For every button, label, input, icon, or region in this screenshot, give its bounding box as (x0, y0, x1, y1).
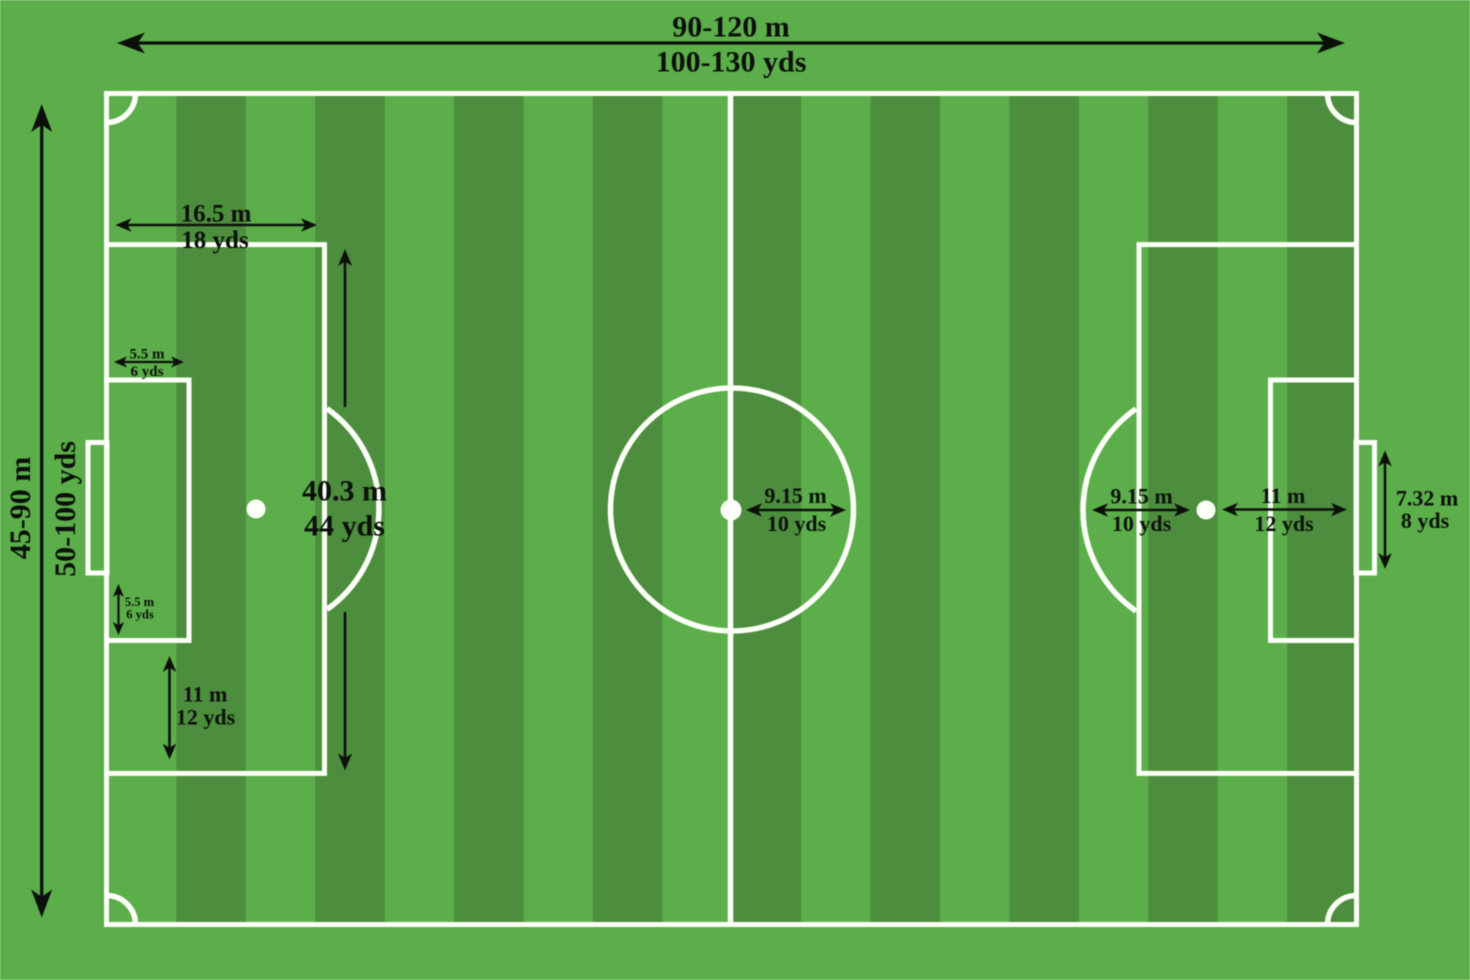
svg-text:90-120 m: 90-120 m (672, 11, 789, 44)
svg-text:9.15 m: 9.15 m (1110, 484, 1172, 509)
svg-text:50-100 yds: 50-100 yds (49, 441, 82, 577)
svg-text:6 yds: 6 yds (126, 607, 154, 621)
svg-text:100-130 yds: 100-130 yds (656, 46, 807, 79)
svg-text:44 yds: 44 yds (304, 510, 385, 543)
svg-text:45-90 m: 45-90 m (4, 457, 37, 559)
svg-text:18 yds: 18 yds (181, 227, 249, 254)
svg-text:7.32 m: 7.32 m (1396, 486, 1458, 511)
svg-text:8 yds: 8 yds (1401, 508, 1450, 533)
svg-text:12 yds: 12 yds (176, 705, 236, 730)
svg-text:10 yds: 10 yds (1112, 511, 1172, 536)
svg-text:6 yds: 6 yds (131, 364, 164, 380)
svg-text:12 yds: 12 yds (1254, 511, 1314, 536)
svg-text:9.15 m: 9.15 m (764, 483, 826, 508)
svg-text:16.5 m: 16.5 m (181, 201, 252, 228)
svg-text:40.3 m: 40.3 m (302, 475, 387, 508)
svg-text:5.5 m: 5.5 m (130, 347, 166, 363)
svg-text:11 m: 11 m (183, 682, 228, 707)
svg-text:11 m: 11 m (1261, 483, 1306, 508)
svg-text:10 yds: 10 yds (767, 511, 827, 536)
